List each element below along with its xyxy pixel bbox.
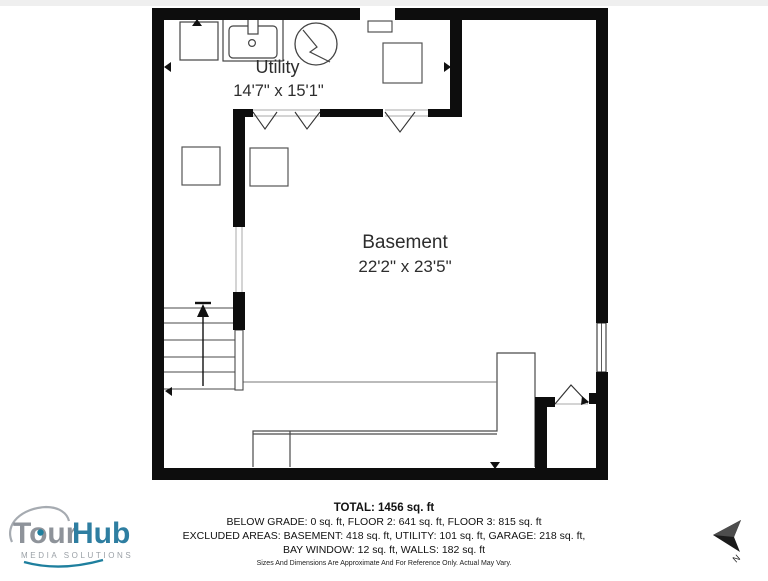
- tourhub-logo: Tour Hub MEDIA SOLUTIONS: [6, 496, 156, 576]
- storage-box-right: [250, 148, 288, 186]
- room-dims-utility: 14'7" x 15'1": [196, 82, 361, 100]
- basement-room-label: Basement: [330, 233, 480, 254]
- stairs-up-arrow-icon: [195, 303, 211, 386]
- logo-swoosh-teal: [24, 560, 103, 567]
- north-arrow-icon: N: [700, 510, 764, 572]
- counter-outline: [253, 353, 535, 467]
- top-wall-window: [368, 21, 392, 32]
- stair-railing: [235, 330, 243, 390]
- utility-sink-icon: [223, 18, 283, 61]
- logo-text-hub: Hub: [72, 517, 130, 550]
- logo-lens-dot: [37, 529, 43, 535]
- room-name-utility: Utility: [205, 58, 350, 78]
- compass-n-label: N: [731, 553, 743, 565]
- door-swing-icon: [555, 385, 589, 405]
- storage-box-left: [182, 147, 220, 185]
- basement-room-dimensions: 22'2" x 23'5": [325, 258, 485, 277]
- tourhub-logo-graphic: Tour Hub MEDIA SOLUTIONS: [6, 496, 156, 576]
- washer-icon: [180, 19, 218, 60]
- room-name-basement: Basement: [330, 233, 480, 254]
- logo-tagline: MEDIA SOLUTIONS: [21, 551, 133, 560]
- floor-plan: Utility 14'7" x 15'1" Basement 22'2" x 2…: [0, 0, 768, 497]
- north-compass: N: [700, 510, 764, 572]
- right-wall-window: [597, 323, 606, 372]
- utility-room-dimensions: 14'7" x 15'1": [196, 82, 361, 100]
- room-dims-basement: 22'2" x 23'5": [325, 258, 485, 277]
- logo-text-tour: Tour: [13, 517, 78, 550]
- utility-equipment-box: [383, 43, 422, 83]
- utility-room-label: Utility: [205, 58, 350, 78]
